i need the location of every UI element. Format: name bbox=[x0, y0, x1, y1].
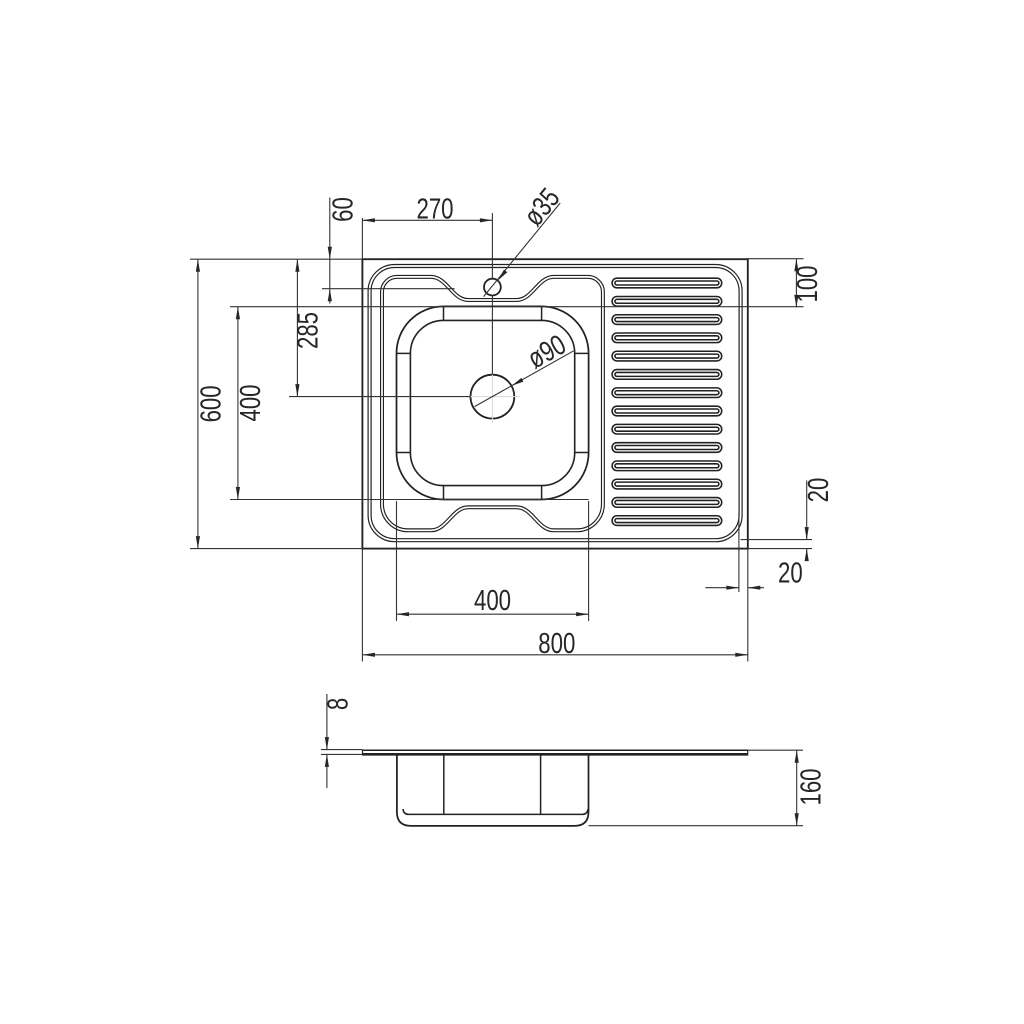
svg-text:60: 60 bbox=[328, 197, 359, 222]
svg-text:20: 20 bbox=[803, 478, 834, 503]
svg-text:800: 800 bbox=[538, 628, 575, 659]
svg-text:600: 600 bbox=[196, 385, 227, 422]
svg-text:285: 285 bbox=[293, 312, 324, 349]
svg-text:8: 8 bbox=[323, 698, 354, 710]
svg-text:160: 160 bbox=[796, 768, 827, 805]
svg-text:100: 100 bbox=[792, 265, 823, 302]
svg-text:270: 270 bbox=[416, 194, 453, 225]
svg-text:20: 20 bbox=[778, 558, 803, 589]
svg-text:400: 400 bbox=[235, 384, 266, 421]
svg-text:400: 400 bbox=[474, 585, 511, 616]
